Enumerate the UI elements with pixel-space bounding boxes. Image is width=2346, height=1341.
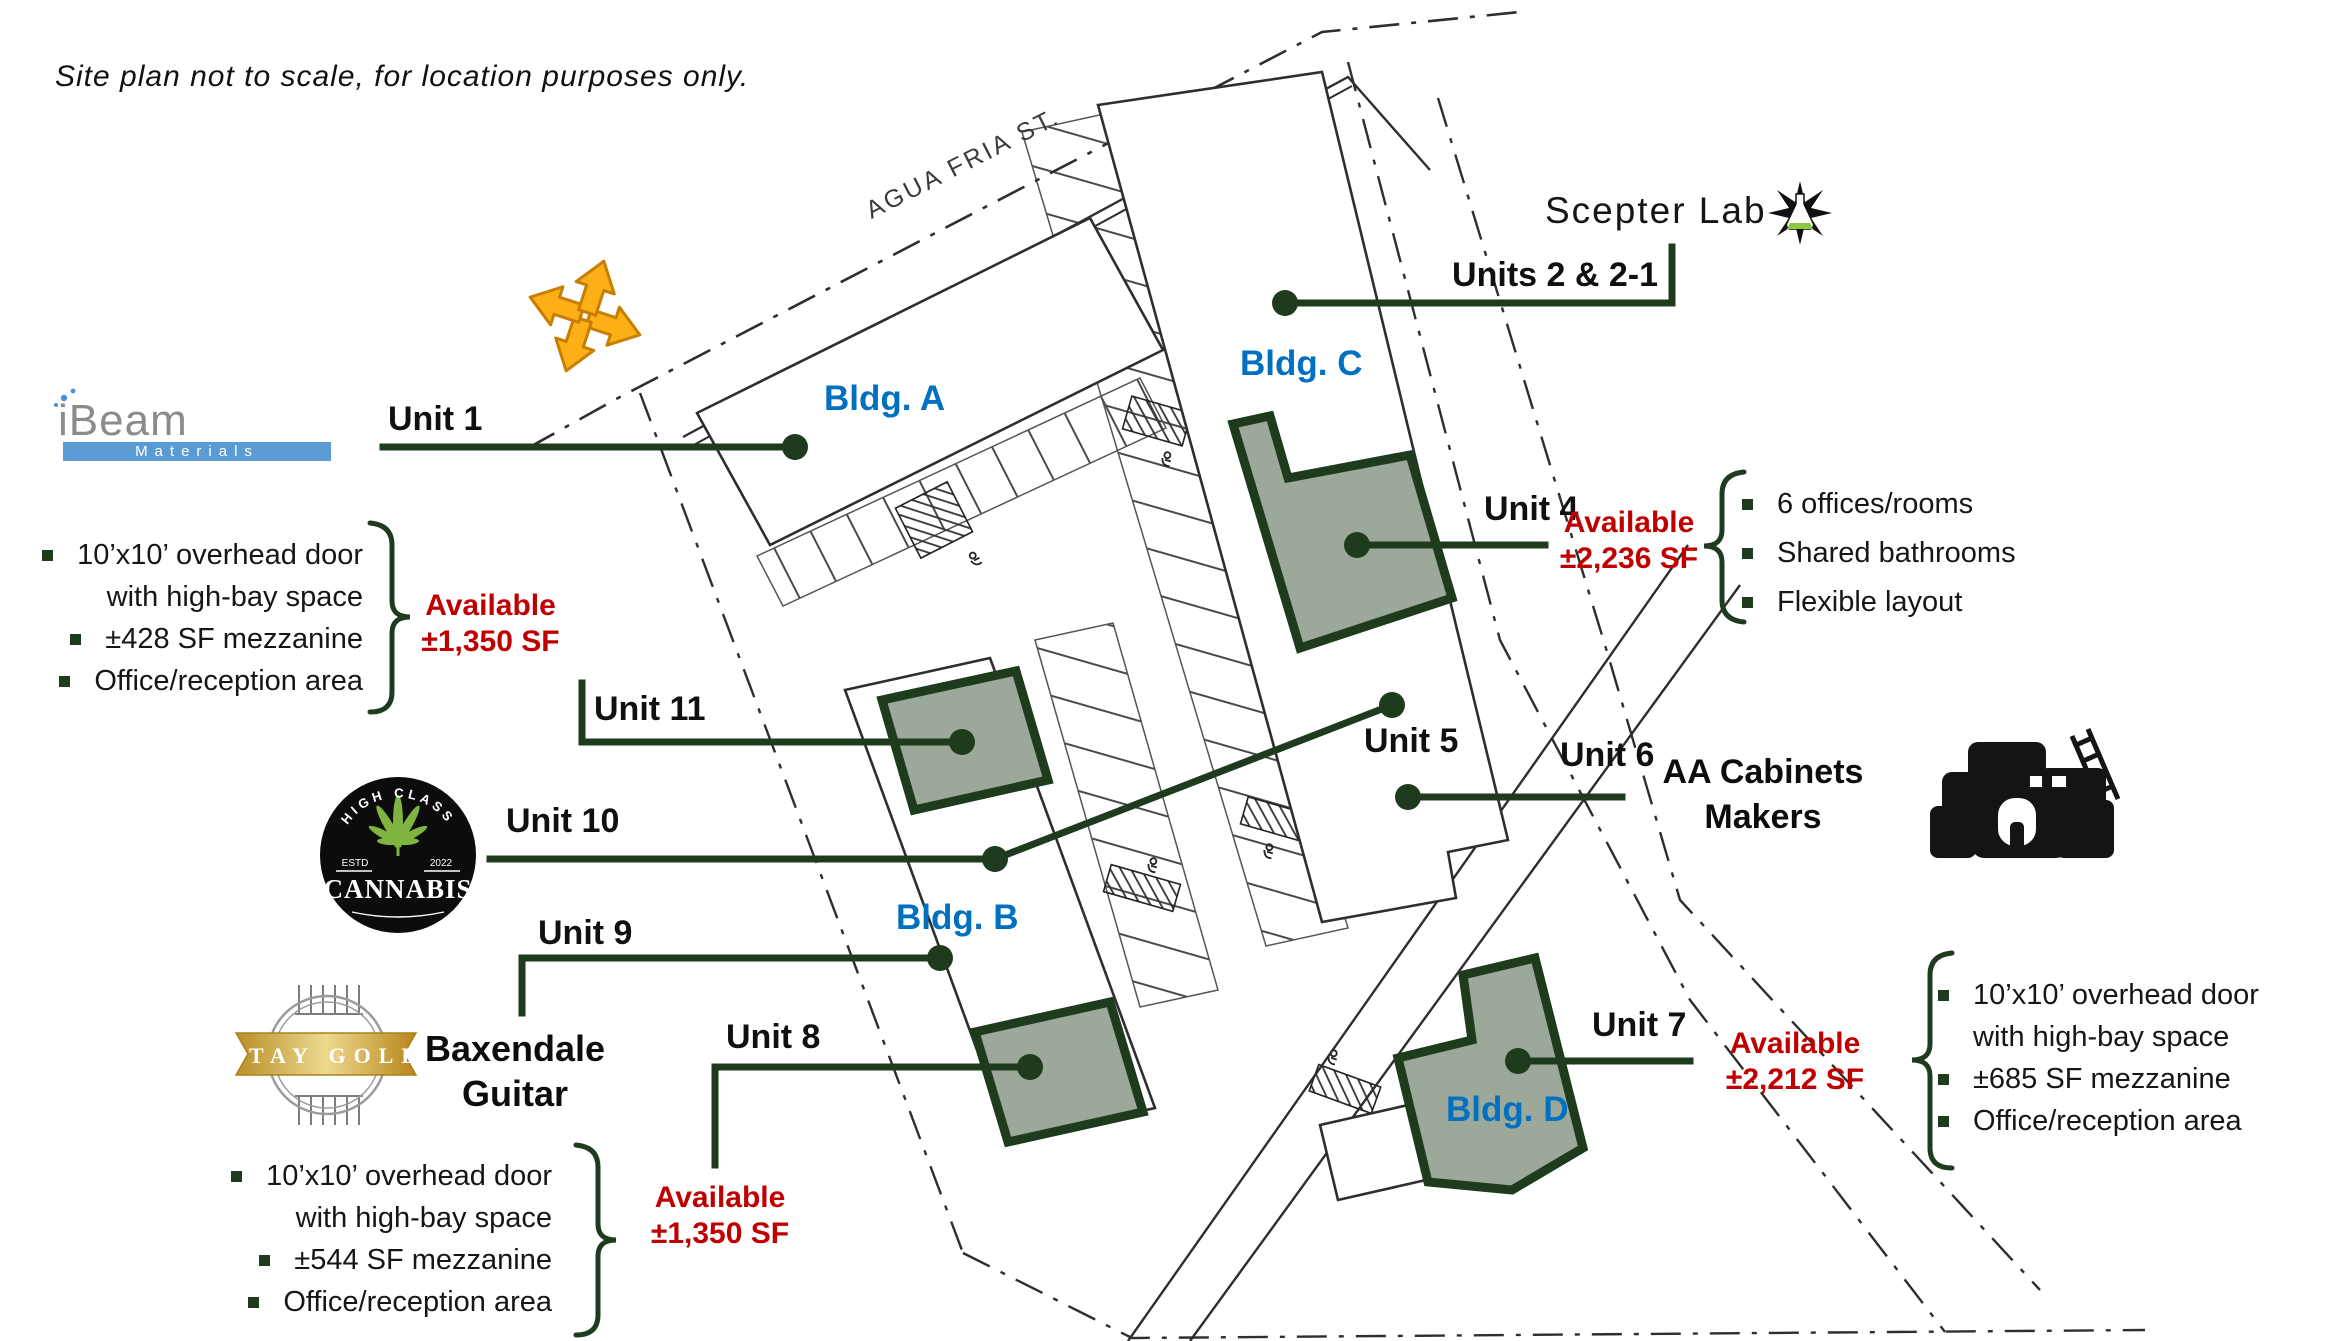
tenant-name-line: Makers	[1638, 795, 1888, 840]
feature-item: Office/reception area	[283, 1286, 552, 1319]
feature-item: Flexible layout	[1777, 586, 1962, 619]
bldg-b-label: Bldg. B	[896, 898, 1018, 938]
feature-item: 10’x10’ overhead door	[77, 539, 363, 572]
cannabis-logo: HIGH CLASS ESTD 2022 CANNABIS	[320, 777, 476, 933]
unit-5-label: Unit 5	[1364, 722, 1458, 761]
availability-size: ±1,350 SF	[413, 624, 568, 660]
unit-8-building	[975, 1002, 1143, 1142]
feature-item: ±685 SF mezzanine	[1973, 1063, 2231, 1096]
scepter-lab-icon	[1768, 181, 1832, 245]
bullet-square-icon	[259, 1255, 270, 1266]
feature-item: 10’x10’ overhead door	[1973, 979, 2259, 1012]
availability-size: ±2,236 SF	[1549, 541, 1709, 577]
unit-7-label: Unit 7	[1592, 1006, 1686, 1045]
feature-item: 10’x10’ overhead door	[266, 1160, 552, 1193]
unit-1-label: Unit 1	[388, 400, 482, 439]
cannabis-wordmark: CANNABIS	[323, 874, 472, 904]
unit-8-label: Unit 8	[726, 1018, 820, 1057]
feature-item: with high-bay space	[1973, 1021, 2229, 1054]
bldg-d-label: Bldg. D	[1446, 1090, 1568, 1130]
feature-item: ±428 SF mezzanine	[105, 623, 363, 656]
availability-size: ±2,212 SF	[1700, 1062, 1890, 1098]
feature-item: 6 offices/rooms	[1777, 488, 1973, 521]
feature-item: with high-bay space	[107, 581, 363, 614]
building-d-shape	[1398, 958, 1583, 1190]
disclaimer-text: Site plan not to scale, for location pur…	[55, 60, 749, 94]
stay-gold-ribbon-text: STAY GOLD	[229, 1043, 426, 1068]
bullet-square-icon	[1938, 1074, 1949, 1085]
bldg-c-label: Bldg. C	[1240, 344, 1362, 384]
feature-item: ±544 SF mezzanine	[294, 1244, 552, 1277]
unit-10-label: Unit 10	[506, 802, 619, 841]
feature-item: with high-bay space	[296, 1202, 552, 1235]
ibeam-materials-bar: Materials	[63, 442, 331, 461]
stay-gold-logo: STAY GOLD	[229, 985, 426, 1125]
bullet-square-icon	[59, 676, 70, 687]
bullet-square-icon	[70, 634, 81, 645]
feature-item: Office/reception area	[1973, 1105, 2242, 1138]
unit4-feature-list: 6 offices/rooms Shared bathrooms Flexibl…	[1742, 480, 2016, 627]
scepter-lab-logo-text: Scepter Lab	[1545, 190, 1767, 232]
cannabis-year: 2022	[430, 858, 453, 869]
availability-word: Available	[413, 588, 568, 624]
ibeam-logo-text: iBeam	[58, 396, 188, 446]
site-plan-flyer: HIGH CLASS ESTD 2022 CANNABIS STAY GOLD	[0, 0, 2346, 1341]
units-2-label: Units 2 & 2-1	[1400, 256, 1658, 295]
bullet-square-icon	[1938, 1116, 1949, 1127]
tenant-name-line: Guitar	[405, 1071, 625, 1116]
tenant-name-line: AA Cabinets	[1638, 750, 1888, 795]
feature-item: Shared bathrooms	[1777, 537, 2016, 570]
baxendale-guitar-name: Baxendale Guitar	[405, 1026, 625, 1116]
availability-word: Available	[1700, 1026, 1890, 1062]
cannabis-estd: ESTD	[342, 858, 369, 869]
bullet-square-icon	[1742, 499, 1753, 510]
unit7-feature-list: 10’x10’ overhead door with high-bay spac…	[1938, 974, 2259, 1142]
unit11-availability: Available ±1,350 SF	[413, 588, 568, 660]
availability-word: Available	[1549, 505, 1709, 541]
bullet-square-icon	[248, 1297, 259, 1308]
traffic-arrows-icon	[524, 255, 646, 377]
bullet-square-icon	[231, 1171, 242, 1182]
aa-cabinets-name: AA Cabinets Makers	[1638, 750, 1888, 840]
tenant-name-line: Baxendale	[405, 1026, 625, 1071]
bullet-square-icon	[42, 550, 53, 561]
availability-word: Available	[620, 1180, 820, 1216]
bullet-square-icon	[1742, 548, 1753, 559]
unit-9-label: Unit 9	[538, 914, 632, 953]
bldg-a-label: Bldg. A	[824, 379, 945, 419]
unit-11-label: Unit 11	[594, 690, 705, 729]
feature-item: Office/reception area	[94, 665, 363, 698]
bullet-square-icon	[1742, 597, 1753, 608]
unit11-feature-list: 10’x10’ overhead door with high-bay spac…	[58, 534, 363, 702]
unit7-availability: Available ±2,212 SF	[1700, 1026, 1890, 1098]
bullet-square-icon	[1938, 990, 1949, 1001]
aa-cabinets-icon	[1930, 729, 2118, 858]
availability-size: ±1,350 SF	[620, 1216, 820, 1252]
unit8-feature-list: 10’x10’ overhead door with high-bay spac…	[180, 1155, 552, 1323]
unit4-availability: Available ±2,236 SF	[1549, 505, 1709, 577]
unit8-availability: Available ±1,350 SF	[620, 1180, 820, 1252]
